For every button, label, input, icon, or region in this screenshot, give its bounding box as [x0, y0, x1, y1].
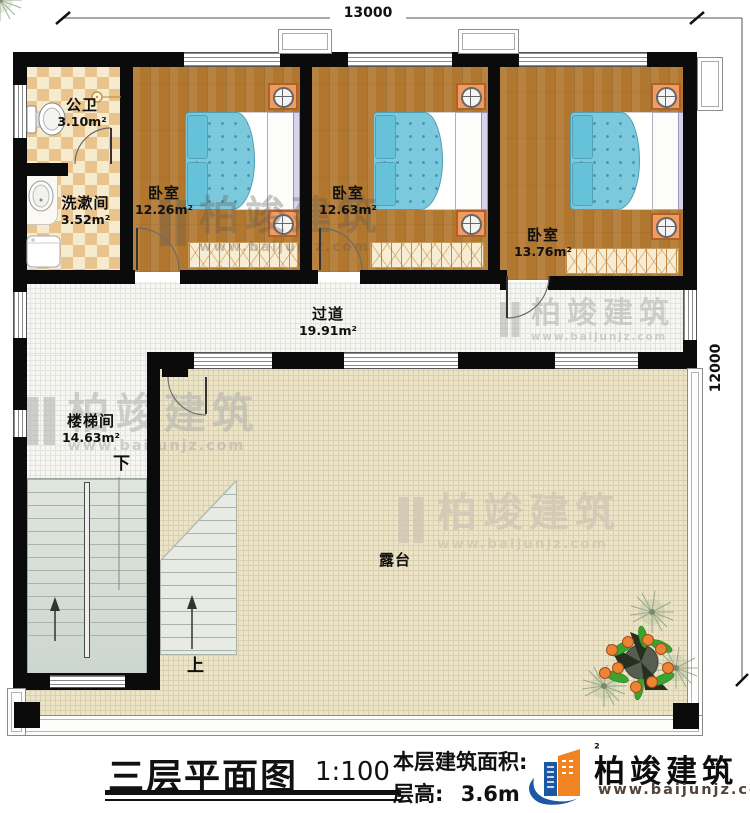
stairs-down-label: 下 [110, 454, 134, 474]
room-area: 12.63m² [302, 202, 394, 217]
room-name: 卧室 [497, 226, 589, 244]
room-label-bedroom1: 卧室 12.26m² [118, 184, 210, 217]
floor-plan-canvas: 柏竣建筑 www.baijunjz.com 柏竣建筑 www.baijunjz.… [0, 0, 750, 813]
room-area: 19.91m² [283, 323, 373, 338]
company-logo-icon [524, 746, 588, 806]
room-label-corridor: 过道 19.91m² [283, 305, 373, 338]
room-name: 公卫 [37, 96, 127, 114]
floor-area-label: 本层建筑面积: [393, 746, 527, 776]
room-area: 13.76m² [497, 244, 589, 259]
room-area: 14.63m² [45, 430, 137, 445]
company-logo-website: www.baijunjz.com [598, 782, 750, 798]
room-name: 卧室 [118, 184, 210, 202]
room-name: 过道 [283, 305, 373, 323]
room-name: 楼梯间 [45, 412, 137, 430]
stairs-up-label: 上 [184, 656, 208, 676]
room-name: 卧室 [302, 184, 394, 202]
dimension-height: 12000 [708, 340, 724, 396]
room-label-bedroom2: 卧室 12.63m² [302, 184, 394, 217]
drawing-scale: 1:100 [315, 757, 390, 787]
room-area: 12.26m² [118, 202, 210, 217]
floor-height: 层高: 3.6m [393, 778, 520, 808]
room-label-bedroom3: 卧室 13.76m² [497, 226, 589, 259]
floor-height-label: 层高: [393, 782, 443, 806]
title-underline [105, 790, 401, 795]
title-underline-thin [105, 799, 401, 801]
room-label-terrace: 露台 [370, 551, 420, 569]
room-label-stairwell: 楼梯间 14.63m² [45, 412, 137, 445]
dimension-width: 13000 [330, 5, 406, 23]
room-area: 3.10m² [37, 114, 127, 129]
room-label-public-bath: 公卫 3.10m² [37, 96, 127, 129]
floor-height-value: 3.6m [461, 782, 520, 806]
